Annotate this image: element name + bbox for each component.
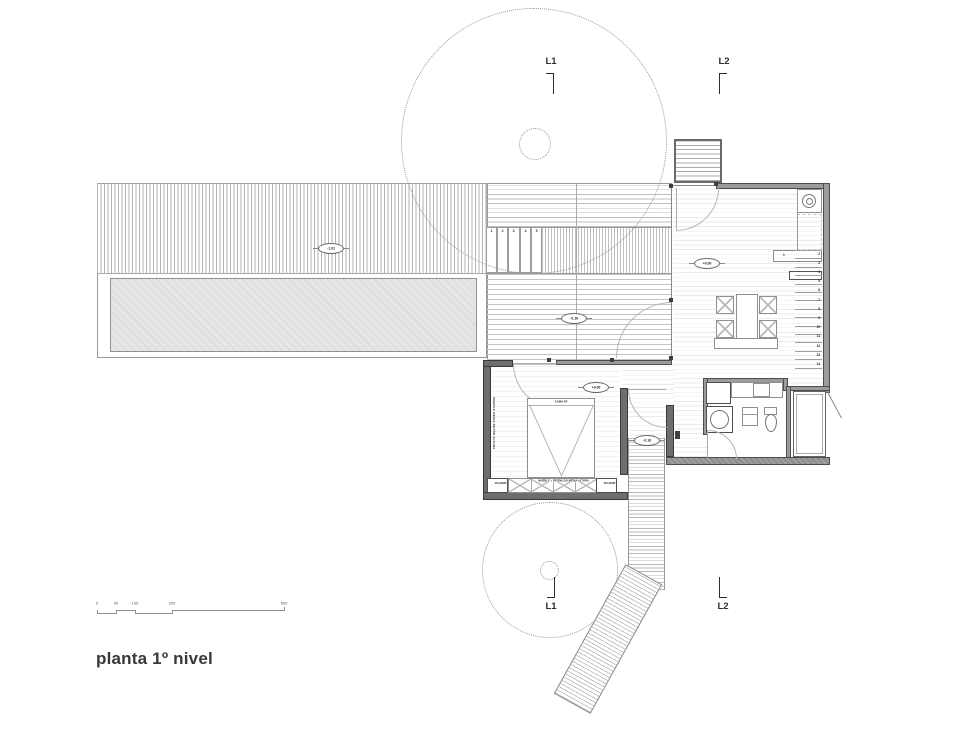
stair-tread-line [795, 292, 822, 293]
walkway-wall-right [666, 405, 674, 457]
scale-bar-segment [97, 613, 116, 614]
bed-back-unit: MUEBLE + RESPALDO MEDIA ALTURA [508, 478, 597, 493]
boardwalk [628, 438, 665, 590]
scale-bar-tick [172, 610, 173, 614]
scale-tick-label: 100 [132, 601, 139, 606]
east-door-leaf [827, 391, 842, 418]
mullion-connector [669, 356, 673, 360]
south-wall [666, 457, 830, 465]
stair-tread-number: 9 [815, 316, 820, 320]
stair-tread-line [795, 258, 822, 259]
dining-bench [714, 338, 778, 349]
bedroom-wall-right [620, 388, 628, 475]
bath-drawer-unit [742, 407, 758, 426]
deck-joint-line [576, 183, 577, 365]
dining-chair [716, 320, 734, 338]
bed-back-unit-label: MUEBLE + RESPALDO MEDIA ALTURA [538, 479, 568, 482]
kitchen-sink-drain [806, 198, 813, 205]
tree-trunk-bottom [540, 561, 559, 580]
floor-plan-canvas: -1.02 12345 -0.16 +0.00 [0, 0, 960, 730]
shower-tray [796, 394, 823, 454]
stair-tread-number: 11 [815, 334, 820, 338]
section-marker-l2-top-v [719, 73, 720, 94]
elevation-marker-living: +0.00 [694, 258, 720, 269]
stair-tread-number: 4 [815, 270, 820, 274]
kitchen-counter-dashed [797, 214, 822, 250]
section-marker-l1-top-label: L1 [544, 56, 558, 67]
drawing-title: planta 1º nivel [96, 649, 213, 669]
elevation-marker-central-deck: -0.16 [561, 313, 587, 324]
nightstand-left: VELADOR [487, 478, 508, 493]
section-marker-l2-bottom-v [719, 577, 720, 598]
scale-bar-tick [97, 610, 98, 614]
entry-door-leaf [676, 188, 677, 230]
scale-tick-label: 0 [94, 601, 101, 606]
stair-tread-number: 10 [815, 325, 820, 329]
stair-tread-line [795, 284, 822, 285]
stair-tread-number: 8 [815, 307, 820, 311]
bedroom-wall-top-b [556, 360, 672, 365]
stair-tread-number: 3 [815, 261, 820, 265]
mullion-connector [669, 184, 673, 188]
deck-band-line-lower [487, 273, 672, 274]
stair-tread-line [795, 359, 822, 360]
stair-tread-number: 2 [815, 252, 820, 256]
scale-tick-label: 500 [281, 601, 288, 606]
kitchen-counter-edge [797, 189, 798, 250]
scale-bar: 050100200500 [95, 601, 295, 617]
scale-bar-tick [284, 607, 285, 611]
deck-band-line-upper [487, 227, 672, 228]
pool [110, 278, 477, 352]
stair-tread-line [795, 275, 822, 276]
closet-wall-label: MUEBLE MEDIA BETÓN ALTURA [492, 397, 495, 450]
stair-tread-number: 14 [815, 362, 820, 366]
stair-tread-line [795, 267, 822, 268]
bedroom-wall-bottom [483, 492, 628, 500]
nightstand-right: VELADOR [596, 478, 617, 493]
bath-door-leaf [707, 430, 708, 458]
scale-bar-tick [116, 610, 117, 614]
entry-opening-line [672, 185, 718, 186]
bath-sink [753, 383, 770, 397]
bed-headboard-line [527, 405, 595, 406]
scale-bar-segment [135, 613, 172, 614]
bath-cabinet [706, 382, 731, 404]
bath-wall-mid [786, 386, 791, 460]
washing-machine-drum [710, 410, 729, 429]
scale-bar-segment [172, 610, 285, 611]
mullion-connector [547, 358, 551, 362]
stair-tread-line [795, 250, 822, 251]
section-marker-l2-bottom-label: L2 [716, 601, 730, 612]
interior-stair: 1234567891011121314 [773, 250, 822, 372]
drawer-divider [742, 414, 758, 415]
stair-tread-number: 5 [815, 279, 820, 283]
mullion-connector [714, 182, 718, 186]
elevation-marker-bedroom: +0.00 [583, 382, 609, 393]
section-marker-l2-bottom-h [719, 597, 727, 598]
mullion-connector [610, 358, 614, 362]
scale-tick-label: 200 [169, 601, 176, 606]
tree-trunk-top [519, 128, 551, 160]
bedroom-wall-top-a [483, 360, 513, 367]
bed-label: CAMA 2P [549, 400, 573, 403]
east-wall [823, 183, 830, 393]
dining-chair [716, 296, 734, 314]
section-marker-l1-bottom-label: L1 [544, 601, 558, 612]
scale-bar-segment [116, 610, 135, 611]
stair-tread-number: 12 [815, 344, 820, 348]
elevation-marker-left-deck: -1.02 [318, 243, 344, 254]
stair-tread-line [795, 368, 822, 369]
door-stop [675, 431, 680, 439]
stair-tread-number: 6 [815, 288, 820, 292]
bed: CAMA 2P [527, 398, 595, 478]
scale-bar-tick [135, 610, 136, 614]
brace-panel [509, 479, 532, 492]
stair-tread-number: 7 [815, 298, 820, 302]
entry-landing [674, 139, 722, 183]
section-marker-l1-bottom-v [554, 577, 555, 598]
section-marker-l1-top-v [553, 73, 554, 94]
section-marker-l1-bottom-h [547, 597, 555, 598]
section-marker-l2-top-label: L2 [717, 56, 731, 67]
stair-tread-number: 13 [815, 353, 820, 357]
elevation-marker-walkway: -0.16 [634, 435, 660, 446]
scale-tick-label: 50 [113, 601, 120, 606]
stair-tread-number: 1 [783, 253, 788, 257]
glass-wall-west [671, 188, 672, 365]
stair-tread-line [795, 351, 822, 352]
mullion-connector [669, 298, 673, 302]
north-wall [716, 183, 830, 189]
